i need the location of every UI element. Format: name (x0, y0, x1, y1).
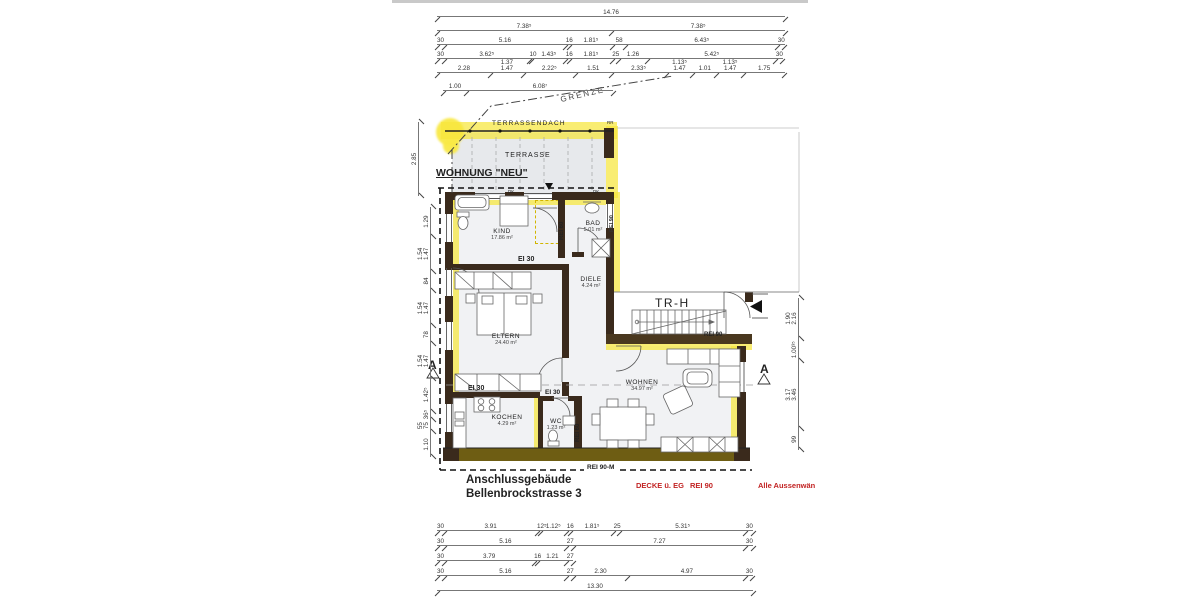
terrace-floor (452, 133, 606, 195)
dim-segment: 1.13⁵ 1.47 (666, 62, 693, 75)
dim-segment: 30 (437, 550, 444, 563)
dim-segment: 2.33⁵ (611, 62, 666, 75)
rei60-label-b: REI 60 (575, 424, 581, 442)
dim-value: 3.62⁵ (444, 52, 529, 58)
dim-value: 2.30 (573, 569, 628, 575)
terrasse-label: TERRASSE (505, 152, 551, 159)
dim-value: 3.17 3.46 (786, 360, 798, 428)
wall-trh-door-stub (745, 292, 753, 302)
dim-value: 1.10 (424, 432, 430, 457)
dim-value: 7.38⁵ (437, 24, 611, 30)
dim-segment: 5.31⁵ (620, 520, 746, 533)
dim-value: 14.76 (437, 10, 785, 16)
bottom-dims-row: 13.30 (437, 580, 753, 593)
dim-value: 27 (567, 554, 573, 560)
wall-left-3 (445, 296, 453, 322)
dim-segment: 1.81⁵ (570, 48, 613, 61)
wall-kind-eltern (445, 264, 563, 270)
dim-value: 2.85 (412, 122, 418, 196)
rr-label: RR (607, 120, 614, 125)
dim-segment: 36⁵ (420, 411, 433, 419)
terrace-height-dim-row: 2.85 (408, 122, 421, 196)
room-kochen: KOCHEN 4.29 m² (490, 414, 524, 427)
dim-segment: 1.43⁵ (532, 48, 566, 61)
dim-segment: 7.38⁵ (437, 20, 611, 33)
highlight-top-wall (453, 200, 606, 205)
dim-value: 30 (437, 38, 444, 44)
dim-value: 5.42⁵ (648, 52, 776, 58)
dim-segment: 1.01 (693, 62, 717, 75)
dim-value: 1.12⁵ (540, 524, 567, 530)
dim-segment: 3.62⁵ (444, 48, 529, 61)
dim-segment: 30 (746, 565, 753, 578)
section-a-right-label: A (760, 362, 769, 376)
dim-value: 30 (437, 569, 444, 575)
apartment-floor-living (606, 346, 737, 448)
dim-segment: 1.90 2.16 (788, 298, 801, 339)
dim-segment: 84 (420, 271, 433, 290)
wall-trh-bottom (606, 334, 752, 344)
wall-bottom-end-left (443, 448, 459, 461)
wall-wc-top-1 (538, 396, 554, 401)
dim-segment: 3.79 (444, 550, 534, 563)
wall-right-upper-1 (606, 192, 614, 204)
dim-value: 13.30 (437, 584, 753, 590)
apartment-floor-upper (453, 200, 606, 448)
wall-wc-left (538, 396, 543, 450)
highlight-blob-small (443, 138, 459, 154)
right-dims-row: 993.17 3.461.00³⁵1.90 2.16 (788, 298, 801, 450)
wall-bottom-base (443, 448, 750, 461)
dim-value: 1.21 (538, 554, 567, 560)
dim-segment: 5.16 (444, 34, 566, 47)
dim-value: 78 (424, 326, 430, 344)
rei90-stairs-label: REI 90 (704, 332, 722, 338)
dim-value: 4.97 (628, 569, 746, 575)
dim-segment: 6.43⁵ (626, 34, 778, 47)
title-line-2: Bellenbrockstrasse 3 (466, 488, 582, 500)
room-kind: KIND 17.86 m² (478, 228, 526, 241)
dim-segment: 5.16 (444, 535, 567, 548)
trh-label: TR-H (655, 296, 690, 310)
red-decke-label: DECKE ü. EG (636, 481, 684, 490)
dim-value: 58 (612, 38, 626, 44)
dim-segment: 30 (437, 48, 444, 61)
dim-value: 1.54 1.47 (418, 291, 430, 326)
dim-segment: 58 (612, 34, 626, 47)
dim-segment: 55 75 (420, 419, 433, 432)
room-wohnen: WOHNEN 34.97 m² (618, 379, 666, 392)
terrassendach-label: TERRASSENDACH (492, 120, 566, 127)
dim-value: 1.43⁵ (532, 52, 566, 58)
dim-value: 36⁵ (424, 411, 430, 419)
ei30-label-c: EI 30 (545, 389, 560, 396)
dim-value: 1.00 (443, 84, 467, 90)
top-dims-row: 14.76 (437, 6, 785, 19)
dim-value: 99 (792, 429, 798, 450)
wall-mid-vert-1 (562, 264, 569, 358)
dim-value: 5.16 (444, 569, 567, 575)
dk-label-2: DK (593, 189, 599, 194)
dim-value: 55 75 (418, 419, 430, 432)
wall-right-living-2 (737, 392, 746, 448)
red-aussenwand-label: Alle Aussenwän (758, 481, 815, 490)
wall-bottom-end-right (734, 448, 750, 461)
dim-segment: 1.51 (576, 62, 612, 75)
dim-value: 1.26 (618, 52, 648, 58)
wohnung-neu-label: WOHNUNG "NEU" (436, 167, 528, 179)
dim-value: 5.31⁵ (620, 524, 746, 530)
bottom-dims-row: 305.16277.2730 (437, 535, 753, 548)
dim-value: 30 (437, 52, 444, 58)
dim-segment: 7.38⁵ (611, 20, 785, 33)
dim-segment: 1.81⁵ (571, 520, 614, 533)
dim-value: 1.75 (743, 66, 784, 72)
dim-segment: 7.27 (573, 535, 746, 548)
dim-value: 1.13⁵ 1.47 (666, 60, 693, 72)
dim-segment: 1.29 (420, 207, 433, 236)
dim-value: 2.22⁵ (523, 66, 575, 72)
dim-value: 1.90 2.16 (786, 298, 798, 339)
dim-segment: 1.00 (443, 80, 467, 93)
dim-segment: 30 (746, 535, 753, 548)
dim-value: 30 (746, 524, 753, 530)
dim-segment: 1.37 1.47 (491, 62, 523, 75)
dim-segment: 30 (437, 520, 444, 533)
dim-value: 1.54 1.47 (418, 236, 430, 271)
highlight-left-wall (453, 200, 459, 448)
dim-value: 3.79 (444, 554, 534, 560)
wall-bath-bottom-2 (602, 252, 614, 257)
rei60-label-a: REI 60 (559, 222, 565, 240)
dim-value: 1.37 1.47 (491, 60, 523, 72)
dim-segment: 1.10 (420, 432, 433, 457)
dim-value: 1.13⁵ 1.47 (717, 60, 744, 72)
ei30-label-b: EI 30 (468, 385, 484, 392)
dim-value: 1.54 1.47 (418, 343, 430, 378)
dim-segment: 1.00³⁵ (788, 339, 801, 361)
dim-segment: 1.75 (743, 62, 784, 75)
dim-segment: 1.54 1.47 (420, 236, 433, 271)
dim-segment: 30 (437, 34, 444, 47)
dim-value: 1.42⁵ (424, 379, 430, 411)
rei90m-label: REI 90-M (584, 464, 617, 471)
red-rei90-label: REI 90 (690, 481, 713, 490)
dim-value: 1.81⁵ (570, 38, 613, 44)
dim-value: 30 (437, 554, 444, 560)
dim-value: 1.81⁵ (570, 52, 613, 58)
grenze-dims-row: 1.006.08⁷ (443, 80, 613, 93)
dim-segment: 5.16 (444, 565, 567, 578)
title-line-1: Anschlussgebäude (466, 474, 571, 486)
dim-segment: 78 (420, 326, 433, 344)
dim-segment: 14.76 (437, 6, 785, 19)
wall-mid-vert-2 (562, 382, 569, 396)
dim-segment: 3.91 (444, 520, 537, 533)
top-dims-row: 7.38⁵7.38⁵ (437, 20, 785, 33)
dim-value: 5.16 (444, 38, 566, 44)
dim-segment: 6.08⁷ (467, 80, 613, 93)
dim-value: 30 (437, 524, 444, 530)
dim-value: 1.01 (693, 66, 717, 72)
room-eltern: ELTERN 24.40 m² (482, 333, 530, 346)
dim-segment: 2.28 (437, 62, 491, 75)
dim-value: 84 (424, 271, 430, 290)
wall-bath-bottom-1 (572, 252, 584, 257)
wall-left-1 (445, 192, 453, 214)
top-dims-row: 2.281.37 1.472.22⁵1.512.33⁵1.13⁵ 1.471.0… (437, 62, 785, 75)
dim-value: 30 (746, 539, 753, 545)
dim-value: 7.38⁵ (611, 24, 785, 30)
wall-terrace-right-block (604, 128, 614, 158)
dim-value: 30 (776, 52, 783, 58)
dim-segment: 1.21 (538, 550, 567, 563)
dim-value: 2.33⁵ (611, 66, 666, 72)
wall-trh-left (606, 292, 614, 338)
room-bad: BAD 5.01 m² (578, 220, 608, 233)
wall-kitchen (445, 392, 540, 398)
dim-value: 6.43⁵ (626, 38, 778, 44)
dim-value: 7.27 (573, 539, 746, 545)
dim-value: 1.29 (424, 207, 430, 236)
dim-value: 5.16 (444, 539, 567, 545)
bottom-dims-row: 303.79161.2127 (437, 550, 573, 563)
dim-segment: 13.30 (437, 580, 753, 593)
dim-value: 3.91 (444, 524, 537, 530)
dim-segment: 30 (776, 48, 783, 61)
dim-value: 30 (437, 539, 444, 545)
top-dims-row: 305.16161.81⁵586.43⁵30 (437, 34, 785, 47)
dim-value: 1.00³⁵ (792, 339, 798, 361)
dim-value: 1.81⁵ (571, 524, 614, 530)
top-gray-strip (392, 0, 808, 3)
dim-segment: 30 (437, 535, 444, 548)
ei30-label-a: EI 30 (518, 256, 534, 263)
dim-value: 6.08⁷ (467, 84, 613, 90)
dim-segment: 3.17 3.46 (788, 360, 801, 428)
dim-segment: 30 (746, 520, 753, 533)
highlight-right-upper-wall (614, 192, 620, 292)
dim-segment: 5.42⁵ (648, 48, 776, 61)
dim-segment: 2.85 (408, 122, 421, 196)
dim-segment: 99 (788, 429, 801, 450)
left-dims-row: 1.1055 7536⁵1.42⁵1.54 1.47781.54 1.47841… (420, 207, 433, 457)
dk-label-1: DK (508, 189, 514, 194)
dim-segment: 1.81⁵ (570, 34, 613, 47)
dim-segment: 27 (567, 550, 573, 563)
dim-value: 2.28 (437, 66, 491, 72)
dim-value: 30 (778, 38, 785, 44)
dim-value: 1.51 (576, 66, 612, 72)
bottom-dims-row: 303.9112⁵1.12⁵161.81⁵255.31⁵30 (437, 520, 753, 533)
bottom-dims-row: 305.16272.304.9730 (437, 565, 753, 578)
dim-segment: 30 (437, 565, 444, 578)
dim-segment: 1.54 1.47 (420, 291, 433, 326)
dim-segment: 1.12⁵ (540, 520, 567, 533)
dim-segment: 1.42⁵ (420, 379, 433, 411)
dim-value: 30 (746, 569, 753, 575)
dim-segment: 2.22⁵ (523, 62, 575, 75)
floorplan-canvas: WOHNUNG "NEU" TERRASSENDACH RR TERRASSE … (0, 0, 1200, 600)
rei90-wall-label: REI 90 (609, 215, 615, 232)
room-wc: WC 1.23 m² (545, 418, 567, 431)
dim-segment: 1.13⁵ 1.47 (717, 62, 744, 75)
dim-segment: 1.26 (618, 48, 648, 61)
dim-segment: 30 (778, 34, 785, 47)
dim-segment: 1.54 1.47 (420, 343, 433, 378)
dim-segment: 4.97 (628, 565, 746, 578)
dim-segment: 2.30 (573, 565, 628, 578)
room-diele: DIELE 4.24 m² (574, 276, 608, 289)
wall-right-living-1 (737, 346, 746, 362)
